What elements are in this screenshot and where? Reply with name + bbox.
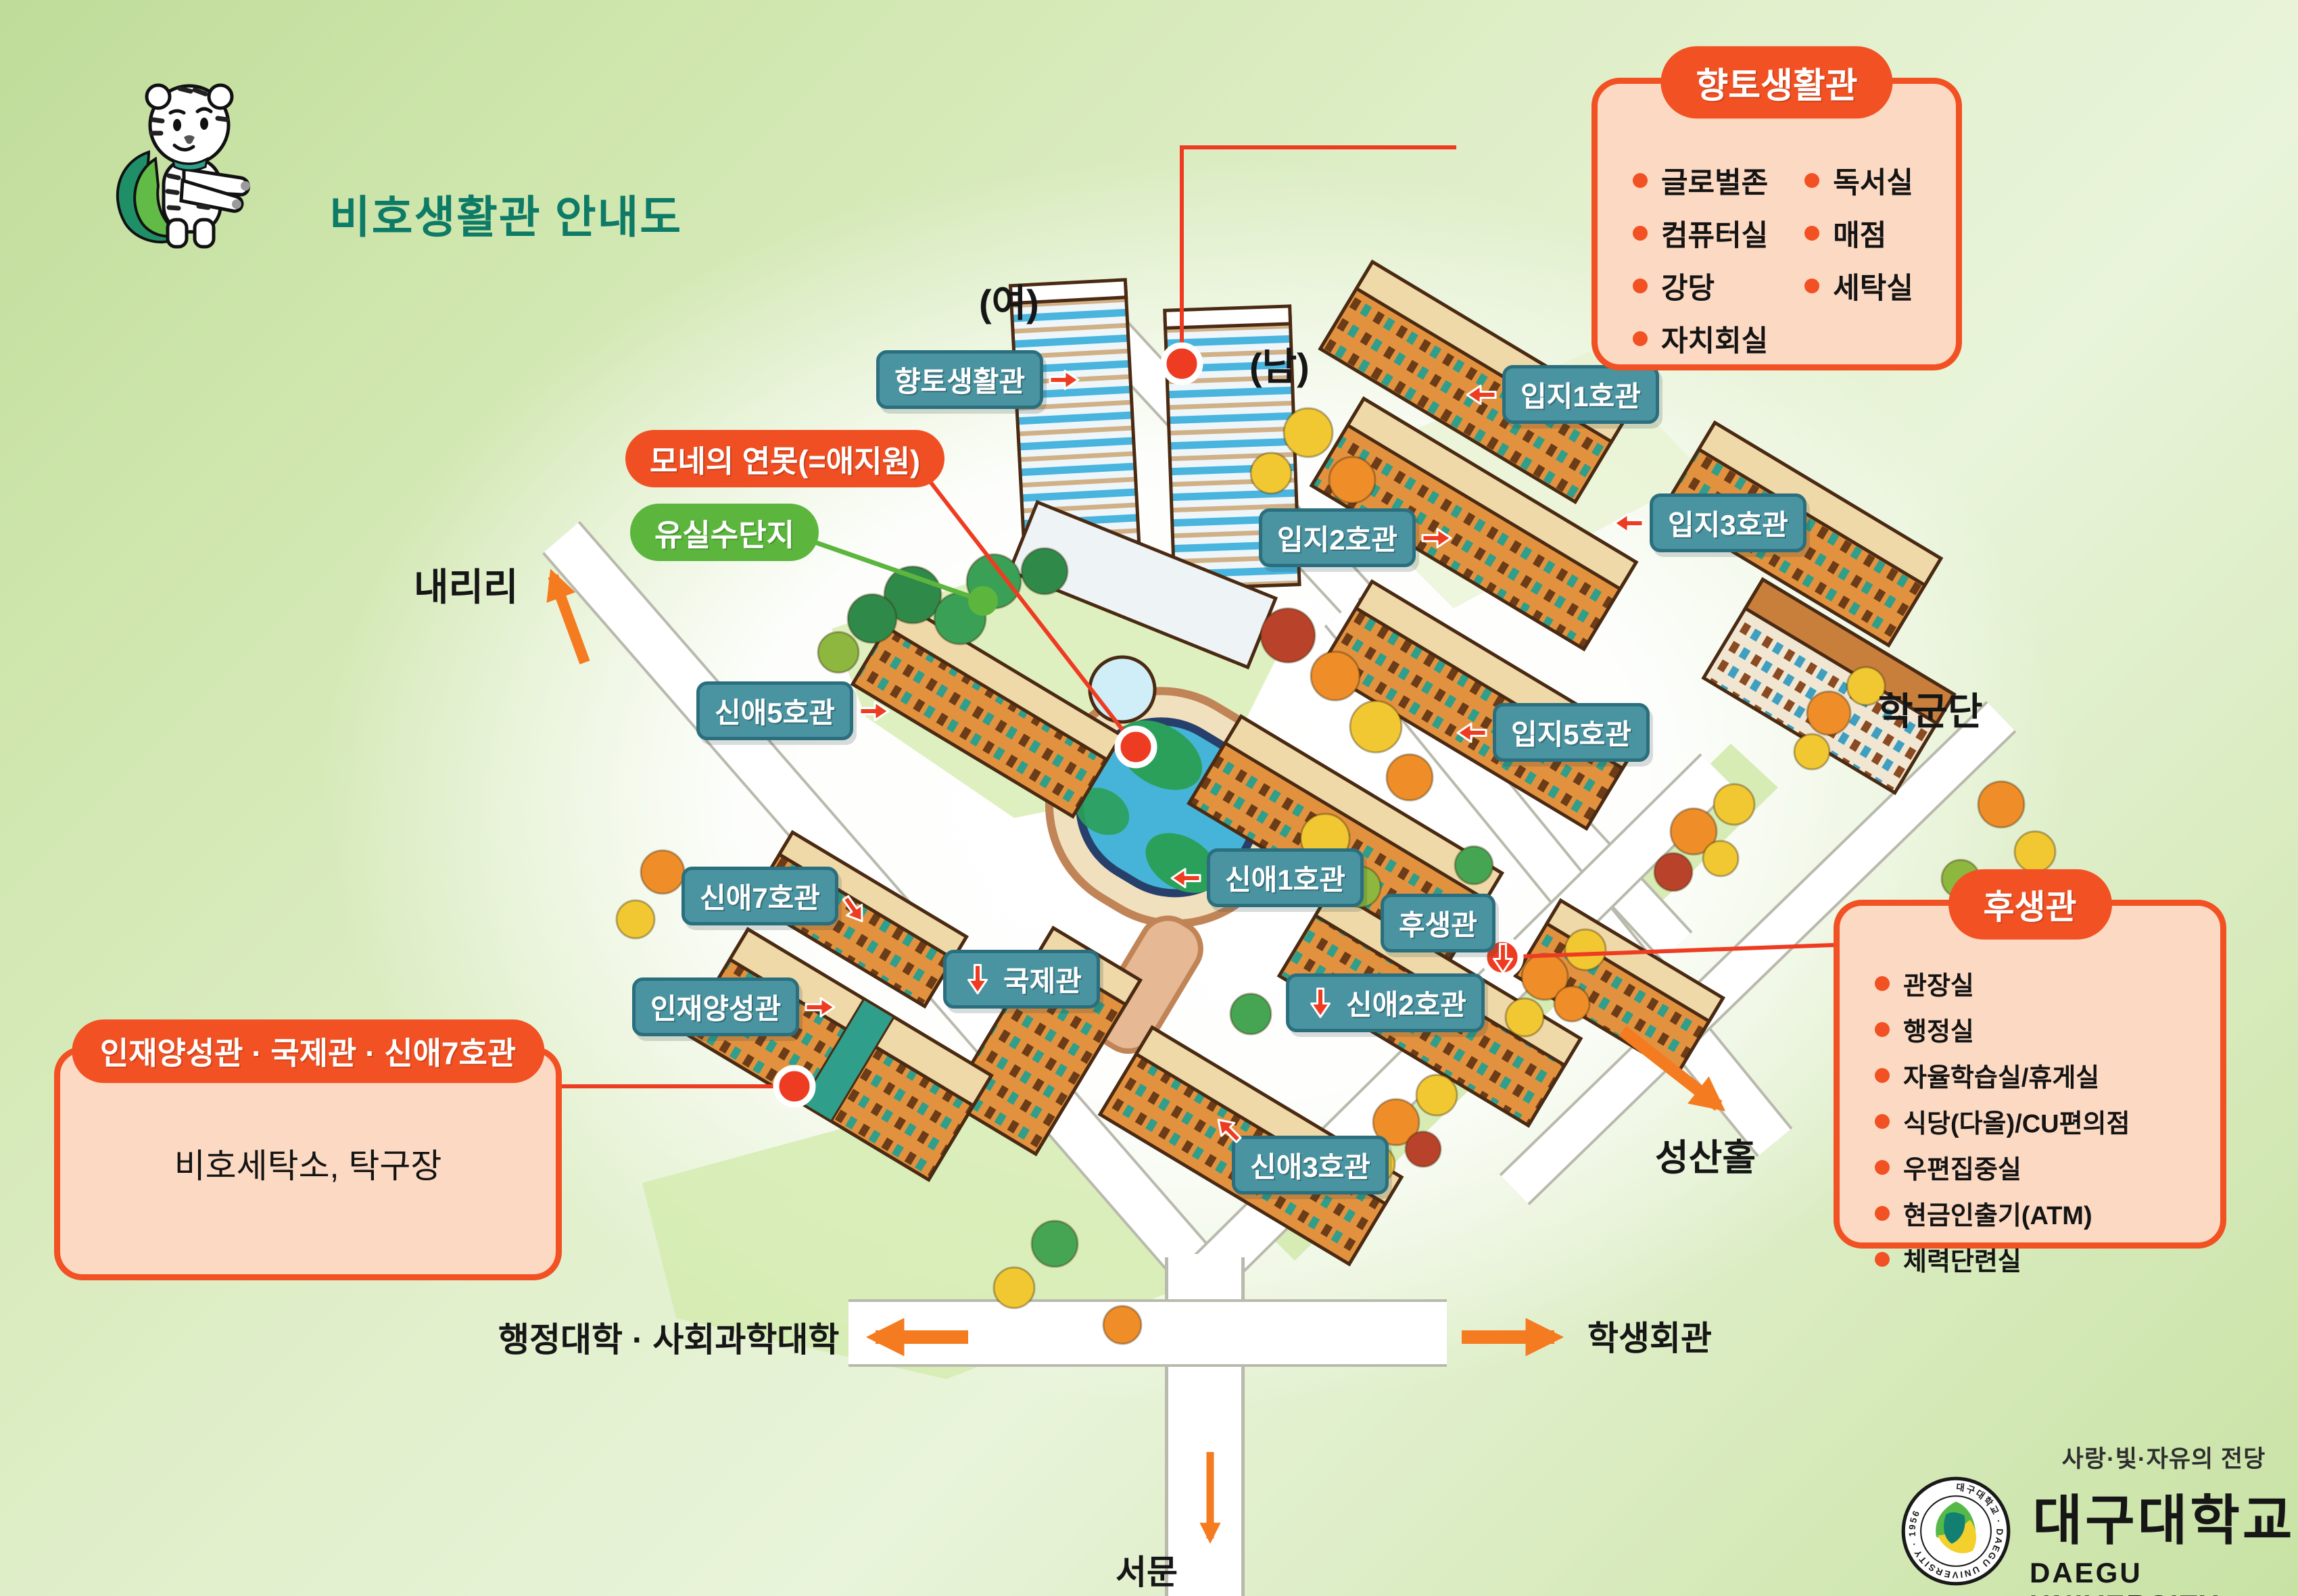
- list-item: 체력단련실: [1875, 1240, 2204, 1278]
- logo-slogan: 사랑·빛·자유의 전당: [2062, 1440, 2266, 1474]
- list-item: 글로벌존: [1633, 160, 1768, 201]
- map-label-text: 신애5호관: [715, 690, 835, 731]
- arrow-right-icon: [1420, 527, 1453, 549]
- callout-husaeng: 후생관 관장실 행정실 자율학습실/휴게실 식당(다올)/CU편의점 우편집중실…: [1834, 900, 2226, 1249]
- logo-university-name-en: DAEGU UNIVERSITY: [2030, 1557, 2298, 1596]
- tiger-mascot: [108, 78, 277, 260]
- area-label-female-dorm: (여): [979, 273, 1039, 328]
- list-item: 자율학습실/휴게실: [1875, 1057, 2204, 1094]
- callout-husaeng-title: 후생관: [1948, 869, 2112, 940]
- map-label-hyangto: 향토생활관: [876, 350, 1043, 409]
- area-label-west-gate: 서문: [1116, 1545, 1178, 1594]
- arrow-left-icon: [1170, 867, 1202, 889]
- page-title: 비호생활관 안내도: [329, 181, 682, 246]
- map-label-ipji5: 입지5호관: [1493, 703, 1650, 762]
- callout-hyangto: 향토생활관 글로벌존 컴퓨터실 강당 자치회실 독서실 매점 세탁실: [1591, 78, 1962, 370]
- bullet-icon: [1875, 1022, 1890, 1037]
- map-label-gukje: 국제관: [943, 950, 1100, 1009]
- arrow-left-icon: [1456, 721, 1488, 744]
- bullet-icon: [1804, 226, 1819, 241]
- list-item: 행정실: [1875, 1011, 2204, 1048]
- map-label-text: 국제관: [1003, 959, 1082, 1000]
- callout-hyangto-left-list: 글로벌존 컴퓨터실 강당 자치회실: [1633, 149, 1768, 370]
- bullet-icon: [1804, 279, 1819, 293]
- map-label-text: 입지5호관: [1511, 712, 1631, 753]
- map-label-sinae7: 신애7호관: [681, 867, 838, 925]
- bullet-icon: [1633, 279, 1648, 293]
- university-seal-icon: 대구대학교 · DAEGU UNIVERSITY · 1956: [1900, 1475, 2012, 1587]
- map-label-text: 입지3호관: [1668, 502, 1788, 543]
- map-label-ipji2: 입지2호관: [1259, 508, 1416, 567]
- bullet-icon: [1875, 1114, 1890, 1129]
- map-label-sinae5: 신애5호관: [696, 681, 853, 740]
- callout-husaeng-list: 관장실 행정실 자율학습실/휴게실 식당(다올)/CU편의점 우편집중실 현금인…: [1840, 906, 2220, 1297]
- area-label-naeriri: 내리리: [414, 557, 519, 612]
- poi-label-monet-pond: 모네의 연못(=애지원): [625, 430, 944, 487]
- callout-injae-title: 인재양성관 · 국제관 · 신애7호관: [72, 1019, 544, 1083]
- map-label-text: 향토생활관: [894, 359, 1025, 400]
- bullet-icon: [1875, 1206, 1890, 1221]
- arrow-right-icon: [804, 996, 836, 1018]
- list-item: 매점: [1804, 212, 1913, 254]
- map-label-text: 신애3호관: [1250, 1144, 1370, 1186]
- bullet-icon: [1633, 173, 1648, 188]
- map-label-sinae2: 신애2호관: [1286, 973, 1485, 1032]
- list-item: 관장실: [1875, 965, 2204, 1002]
- arrow-down-icon: [1310, 987, 1332, 1019]
- list-item: 컴퓨터실: [1633, 212, 1768, 254]
- area-label-seongsan-hall: 성산홀: [1655, 1128, 1756, 1181]
- map-label-ipji3: 입지3호관: [1650, 493, 1806, 552]
- poi-label-orchard: 유실수단지: [630, 504, 819, 561]
- list-item: 세탁실: [1804, 265, 1913, 307]
- area-label-student-hall: 학생회관: [1587, 1311, 1712, 1360]
- arrow-down-icon: [1491, 942, 1514, 975]
- map-label-sinae3: 신애3호관: [1232, 1136, 1389, 1194]
- arrow-left-icon: [1612, 512, 1645, 534]
- arrow-down-icon: [967, 963, 989, 996]
- list-item: 독서실: [1804, 160, 1913, 201]
- campus-map-poster: 비호생활관 안내도 향토생활관 입지1호관 입지2호관 입지3호관 입지5호관 …: [0, 0, 2298, 1596]
- area-label-male-dorm: (남): [1249, 337, 1310, 391]
- bullet-icon: [1875, 1252, 1890, 1267]
- map-label-text: 신애7호관: [700, 875, 820, 917]
- map-label-injae: 인재양성관: [632, 977, 799, 1036]
- bullet-icon: [1633, 331, 1648, 346]
- callout-hyangto-right-list: 독서실 매점 세탁실: [1804, 149, 1913, 370]
- bullet-icon: [1804, 173, 1819, 188]
- map-label-text: 인재양성관: [650, 986, 781, 1027]
- bullet-icon: [1875, 1068, 1890, 1083]
- area-label-admin-social-college: 행정대학 · 사회과학대학: [498, 1313, 839, 1361]
- map-label-husaeng: 후생관: [1381, 894, 1495, 952]
- list-item: 강당: [1633, 265, 1768, 307]
- bullet-icon: [1875, 976, 1890, 991]
- map-label-text: 신애2호관: [1346, 982, 1466, 1023]
- callout-injae-body: 비호세탁소, 탁구장: [60, 1053, 556, 1274]
- map-label-text: 입지2호관: [1277, 517, 1397, 558]
- arrow-right-icon: [1048, 368, 1080, 391]
- map-label-text: 신애1호관: [1225, 857, 1345, 898]
- university-logo: 대구대학교 · DAEGU UNIVERSITY · 1956 사랑·빛·자유의…: [1900, 1440, 2298, 1596]
- bullet-icon: [1633, 226, 1648, 241]
- map-label-sinae1: 신애1호관: [1207, 848, 1364, 907]
- area-label-hakgundan: 학군단: [1878, 681, 1983, 736]
- callout-injae: 인재양성관 · 국제관 · 신애7호관 비호세탁소, 탁구장: [54, 1046, 562, 1280]
- arrow-right-icon: [858, 700, 890, 722]
- callout-hyangto-title: 향토생활관: [1660, 46, 1892, 118]
- bullet-icon: [1875, 1160, 1890, 1175]
- list-item: 현금인출기(ATM): [1875, 1194, 2204, 1232]
- map-label-text: 후생관: [1399, 902, 1477, 944]
- list-item: 우편집중실: [1875, 1148, 2204, 1186]
- list-item: 자치회실: [1633, 318, 1768, 360]
- arrow-left-icon: [1465, 383, 1498, 406]
- list-item: 식당(다올)/CU편의점: [1875, 1103, 2204, 1140]
- logo-university-name-ko: 대구대학교: [2033, 1477, 2295, 1555]
